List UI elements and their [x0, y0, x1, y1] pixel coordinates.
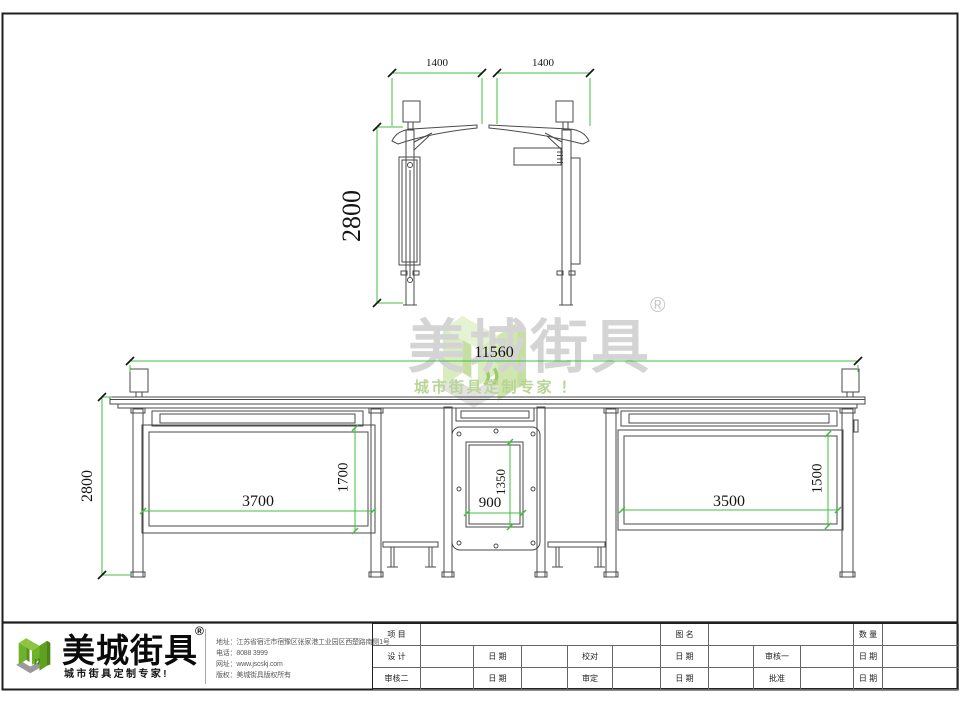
tb-label-ratify: 批准 — [754, 668, 801, 690]
tb-label-review1: 审核一 — [754, 646, 801, 668]
tb-value-date — [709, 668, 754, 690]
dim-right-panel-width: 3500 — [699, 493, 759, 511]
footer-divider — [205, 629, 206, 684]
tb-label-date: 日 期 — [474, 668, 522, 690]
tb-value-date — [522, 646, 568, 668]
tb-value-ratify — [801, 668, 854, 690]
elevation-structure — [110, 369, 865, 577]
tb-label-date: 日 期 — [474, 646, 522, 668]
tb-label-approve: 审定 — [568, 668, 613, 690]
dim-left-panel-height: 1700 — [336, 448, 353, 508]
tb-value-approve — [613, 668, 661, 690]
elevation-dim-ticks-green — [140, 425, 841, 534]
tb-value-project — [421, 624, 661, 646]
tb-label-date: 日 期 — [661, 668, 709, 690]
tb-value-review1 — [801, 646, 854, 668]
dim-side-height: 2800 — [337, 176, 367, 256]
elevation-dimensions — [102, 361, 858, 575]
tb-label-drawing-name: 图 名 — [661, 624, 709, 646]
footer-m-logo — [12, 629, 62, 675]
dim-center-height: 1350 — [493, 453, 509, 511]
dim-side-left-width: 1400 — [415, 57, 459, 69]
tb-value-date — [883, 668, 959, 690]
tb-label-date: 日 期 — [854, 668, 883, 690]
tb-value-date — [522, 668, 568, 690]
tb-label-date: 日 期 — [854, 646, 883, 668]
tb-label-proofread: 校对 — [568, 646, 613, 668]
company-address: 地址：江苏省宿迁市宿豫区张家港工业园区西楚路南侧1号 — [216, 637, 370, 648]
company-copyright: 版权：美城街具版权所有 — [216, 670, 370, 681]
dim-right-panel-height: 1500 — [810, 449, 827, 509]
side-view-right — [489, 101, 589, 305]
footer-slogan: 城市街具定制专家! — [64, 665, 169, 680]
tb-value-drawing-name — [709, 624, 854, 646]
tb-value-date — [709, 646, 754, 668]
tb-label-quantity: 数 量 — [854, 624, 883, 646]
tb-value-date — [883, 646, 959, 668]
company-website: 网址：www.jscskj.com — [216, 659, 370, 670]
tb-value-proofread — [613, 646, 661, 668]
elevation-dim-ticks-black — [98, 357, 862, 579]
tb-label-design: 设 计 — [373, 646, 421, 668]
tb-value-quantity — [883, 624, 959, 646]
tb-value-review2 — [421, 668, 474, 690]
tb-label-project: 项 目 — [373, 624, 421, 646]
tb-label-date: 日 期 — [661, 646, 709, 668]
dim-elevation-height: 2800 — [79, 456, 97, 516]
dim-left-panel-width: 3700 — [228, 493, 288, 511]
company-info: 地址：江苏省宿迁市宿豫区张家港工业园区西楚路南侧1号 电话：8088 3999 … — [216, 637, 370, 681]
tb-label-review2: 审核二 — [373, 668, 421, 690]
side-view-left — [392, 101, 477, 305]
tb-value-design — [421, 646, 474, 668]
dim-total-width: 11560 — [464, 344, 524, 362]
side-view-dimensions — [377, 73, 590, 303]
company-phone: 电话：8088 3999 — [216, 648, 370, 659]
footer-registered-mark: ® — [195, 624, 204, 638]
dim-side-right-width: 1400 — [521, 57, 565, 69]
title-block: 项 目 图 名 数 量 设 计 日 期 校对 日 期 审核一 日 期 审核二 日… — [372, 623, 958, 689]
